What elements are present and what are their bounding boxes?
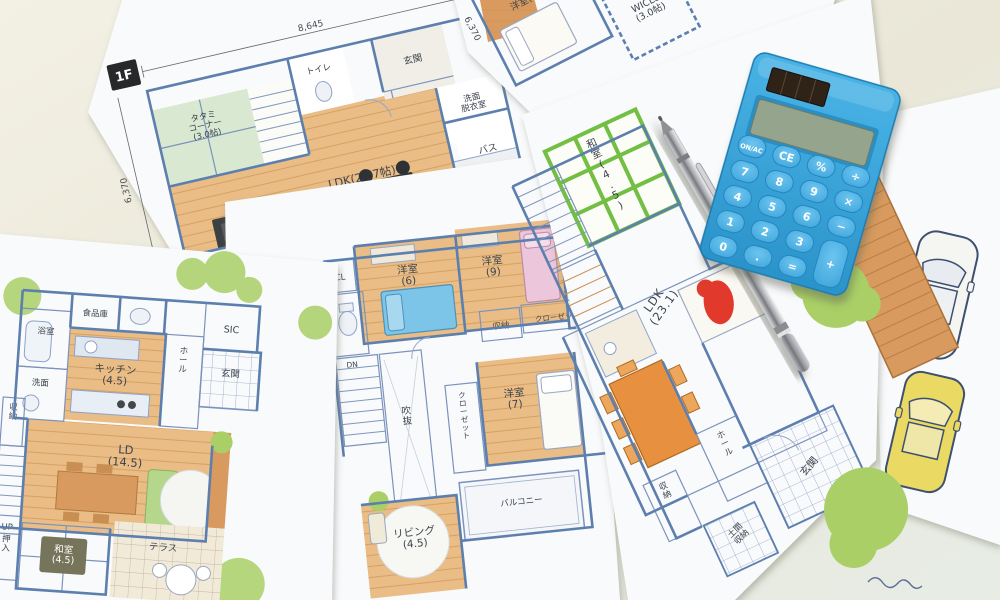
photo-floorplans-desk: 8,645 6,370 1F タタミコーナー(3.0帖) トイレ [0,0,1000,600]
room-label-entrance-ld: 玄関 [220,367,240,380]
entrance-ld [199,349,261,411]
kitchen-counter-ld [74,336,139,360]
stairs-label-dn: DN [346,360,358,370]
floorplan-sheet-ld145: 浴室 洗面 食品庫 キッチン(4.5) ホール SIC 玄関 収納 [0,234,338,600]
room-label-pantry: 食品庫 [82,307,109,320]
room-label-washitsu-ld: 和室(4.5) [51,543,75,567]
kitchen-island-ld [70,390,149,417]
room-label-bath-ld: 浴室 [37,325,55,337]
sofa-icon-2f [368,513,387,545]
room-label-terrace: テラス [149,542,178,555]
room-label-washroom-ld: 洗面 [31,377,49,389]
room-label-sic: SIC [223,324,240,336]
dining-table-ld [56,471,138,514]
